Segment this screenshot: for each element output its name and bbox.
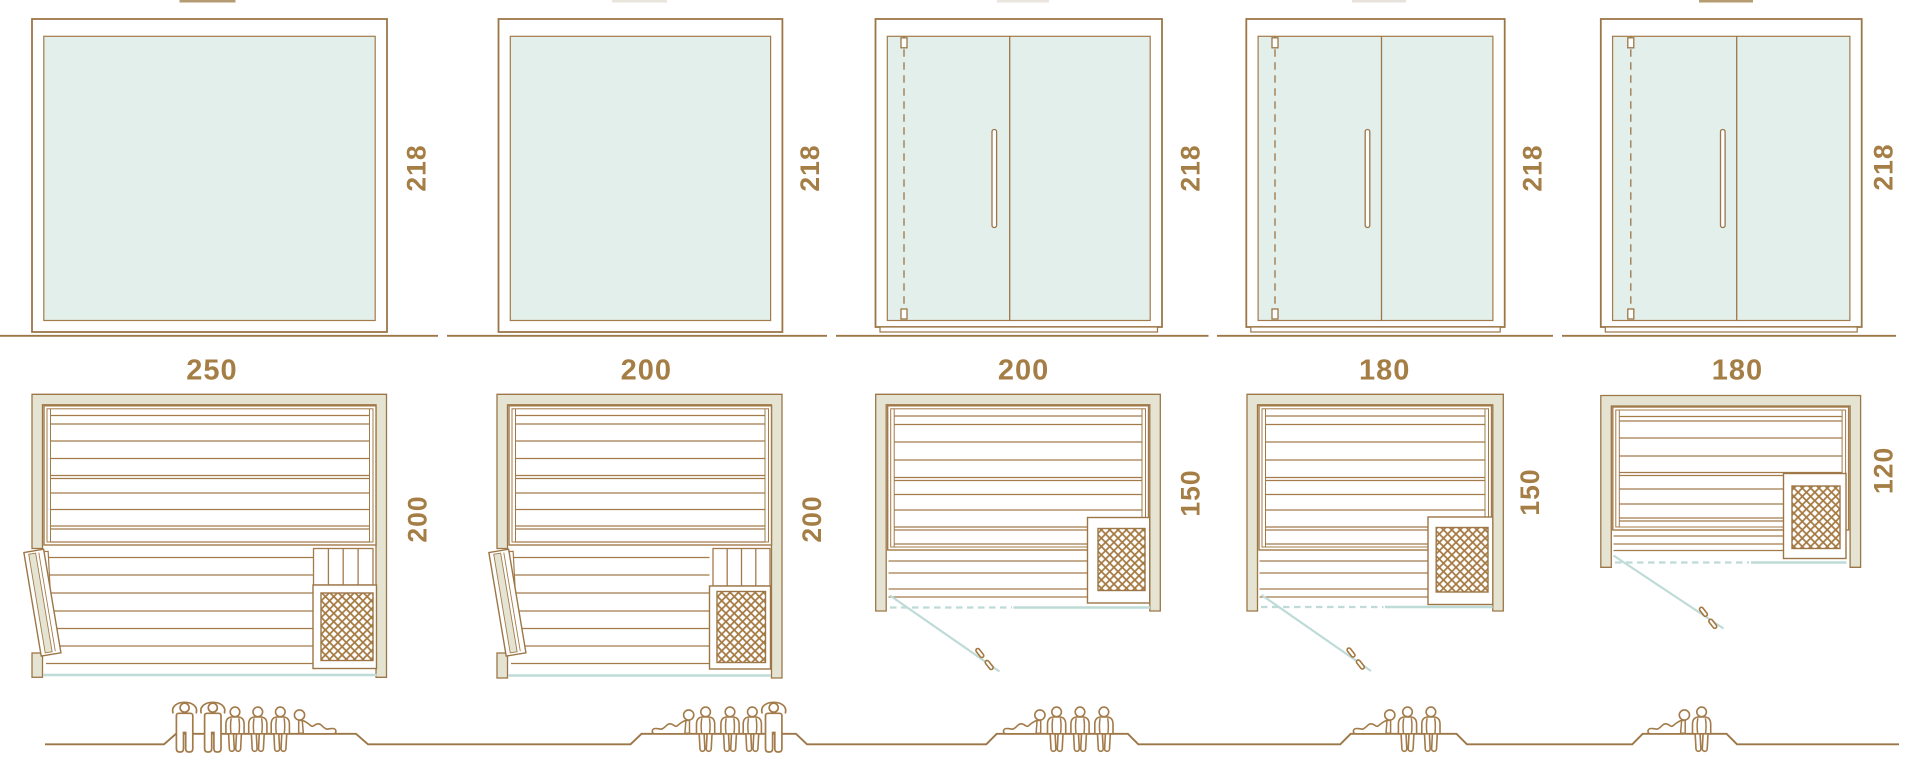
svg-text:218: 218 (1518, 144, 1548, 191)
svg-text:218: 218 (1869, 143, 1899, 190)
svg-text:180: 180 (1712, 355, 1763, 387)
svg-text:150: 150 (1515, 468, 1545, 515)
svg-text:200: 200 (797, 495, 827, 542)
svg-text:200: 200 (403, 495, 433, 542)
svg-text:250: 250 (186, 355, 237, 387)
svg-text:120: 120 (1869, 447, 1899, 494)
svg-text:200: 200 (621, 355, 672, 387)
svg-text:218: 218 (795, 144, 825, 191)
svg-text:180: 180 (1359, 355, 1410, 387)
svg-text:150: 150 (1176, 469, 1206, 516)
svg-text:218: 218 (1176, 144, 1206, 191)
svg-text:218: 218 (402, 144, 432, 191)
svg-text:200: 200 (998, 355, 1049, 387)
